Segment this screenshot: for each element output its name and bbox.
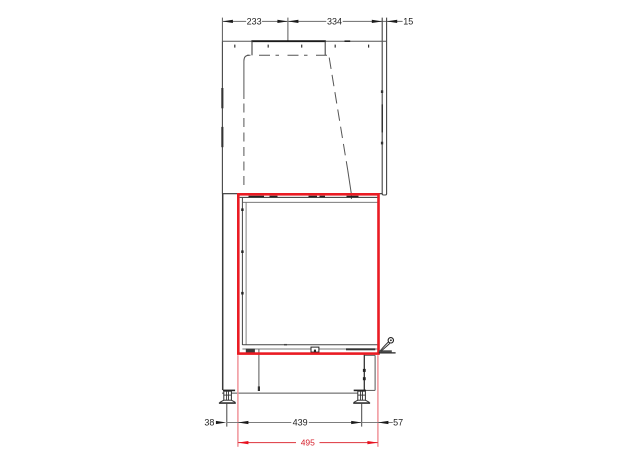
svg-text:15: 15 (403, 17, 413, 27)
svg-text:334: 334 (327, 17, 342, 27)
svg-text:57: 57 (393, 418, 403, 428)
svg-text:439: 439 (293, 418, 308, 428)
svg-text:38: 38 (204, 418, 214, 428)
svg-text:495: 495 (301, 438, 315, 448)
svg-text:233: 233 (247, 17, 262, 27)
